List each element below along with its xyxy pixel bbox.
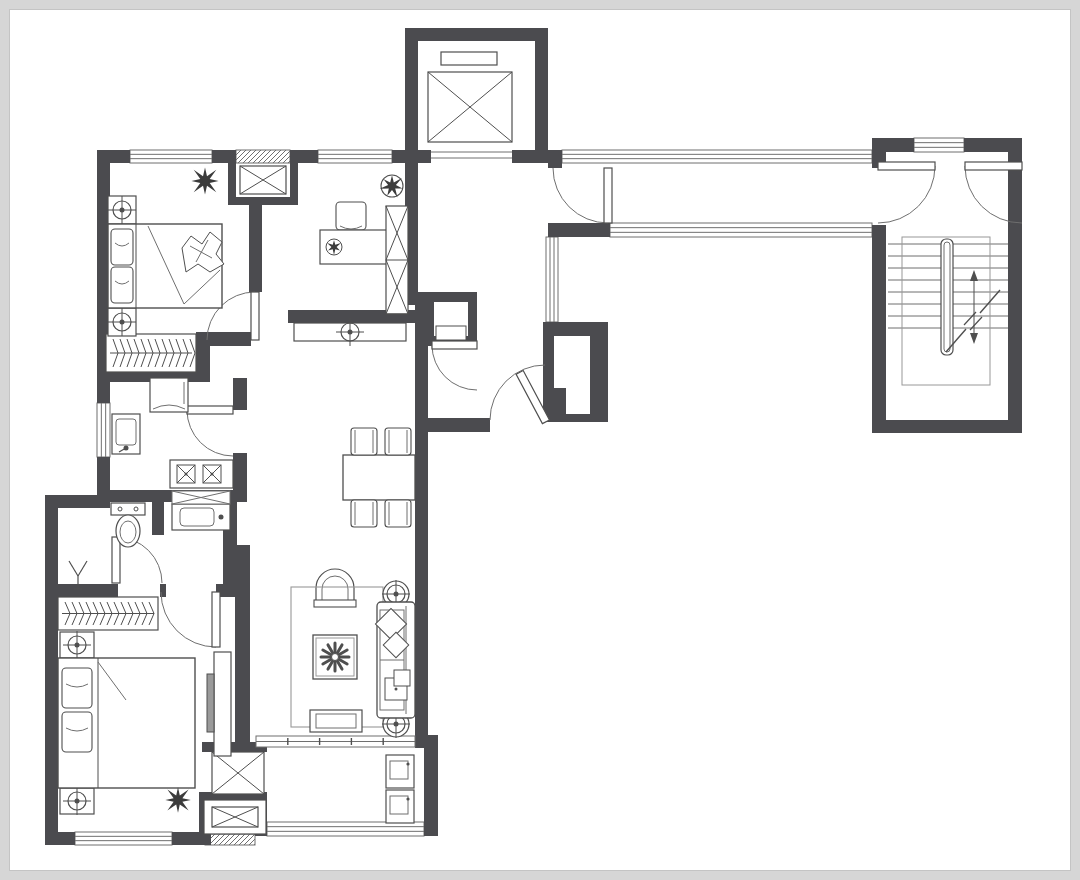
wall <box>249 205 262 292</box>
dryer <box>386 790 414 823</box>
wall <box>228 197 298 205</box>
bed-secondary <box>108 224 224 308</box>
wall <box>298 150 318 163</box>
entry-door <box>490 365 549 424</box>
stair-door-left <box>878 162 935 223</box>
washing-machine <box>386 755 414 788</box>
desk <box>320 230 388 264</box>
cooktop <box>170 460 233 488</box>
bed-master <box>58 658 195 788</box>
kitchen-door <box>187 406 233 456</box>
nightstand <box>60 787 94 815</box>
window <box>546 237 558 322</box>
plant <box>165 787 191 813</box>
wall <box>405 28 418 163</box>
wall <box>535 28 548 163</box>
wall <box>290 150 298 205</box>
duct-shaft <box>212 752 264 794</box>
sofa <box>375 602 415 718</box>
wall <box>196 332 210 382</box>
wall <box>548 150 562 168</box>
elevator <box>428 52 512 158</box>
tv-bench <box>310 710 362 732</box>
floor-plan-screenshot <box>0 0 1080 880</box>
kitchen-sink <box>112 414 140 454</box>
window <box>75 832 172 845</box>
armchair <box>314 569 356 607</box>
window <box>562 150 872 163</box>
window <box>130 150 212 163</box>
wardrobe <box>106 334 196 372</box>
wall <box>872 225 886 433</box>
wall <box>1008 138 1022 433</box>
vestibule-door <box>432 341 477 390</box>
wall <box>45 832 75 845</box>
duct-shaft <box>240 166 286 194</box>
plant <box>191 167 218 194</box>
bedroom2-door <box>161 592 220 647</box>
wall <box>424 742 438 836</box>
wall <box>415 415 428 742</box>
window <box>318 150 392 163</box>
wall <box>428 418 490 432</box>
window <box>97 403 110 457</box>
fridge <box>150 378 188 412</box>
dining-table <box>343 428 415 527</box>
bathroom-door <box>112 537 162 583</box>
wall <box>235 545 250 748</box>
desk-chair <box>336 202 366 230</box>
wall <box>548 223 610 237</box>
wall <box>405 150 431 163</box>
lobby-door <box>553 168 612 223</box>
wall-niche <box>566 368 590 414</box>
wall <box>872 420 1022 433</box>
potted-plant <box>380 175 403 197</box>
wall <box>97 150 130 163</box>
nightstand <box>60 631 94 659</box>
wall <box>405 28 548 41</box>
wall <box>872 138 914 152</box>
shoe-cabinet <box>436 326 466 340</box>
sliding-door <box>256 736 415 747</box>
bookshelf <box>386 206 408 314</box>
wall <box>45 495 58 845</box>
wall <box>228 150 236 205</box>
mirror-cabinet <box>172 491 230 504</box>
coffee-table <box>313 635 357 679</box>
wall <box>45 584 118 597</box>
wall <box>152 502 164 535</box>
floor-plan-drawing <box>0 0 1080 880</box>
tv-cabinet <box>207 652 231 756</box>
wall <box>233 378 247 410</box>
ac-platform <box>204 800 266 834</box>
staircase <box>888 237 1008 385</box>
window <box>914 138 964 152</box>
nightstand <box>108 308 136 336</box>
wall <box>172 832 205 845</box>
wall <box>212 150 228 163</box>
wall <box>512 150 548 163</box>
window <box>610 223 872 237</box>
wardrobe <box>58 597 158 630</box>
nightstand <box>108 196 136 224</box>
vanity-sink <box>172 504 230 530</box>
window <box>267 822 424 836</box>
